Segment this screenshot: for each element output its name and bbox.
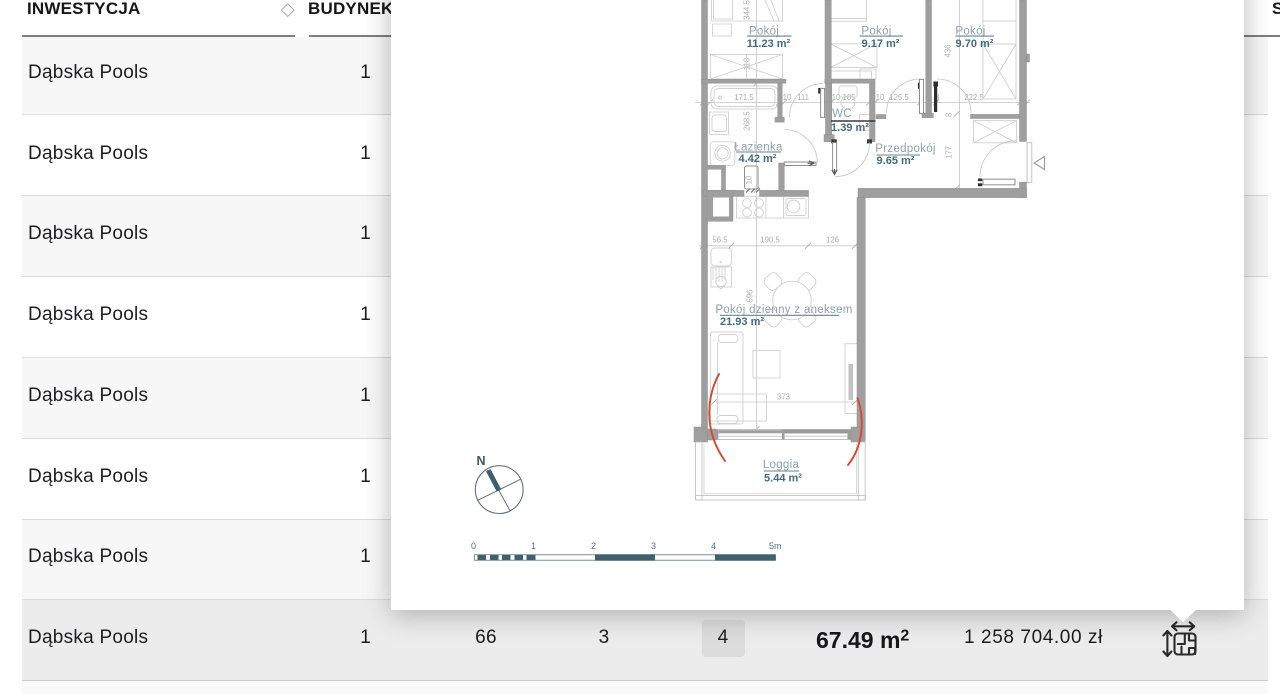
svg-text:Pokój dzienny z aneksem: Pokój dzienny z aneksem: [715, 304, 852, 316]
svg-text:9.17 m²: 9.17 m²: [862, 38, 900, 50]
svg-text:N: N: [476, 454, 485, 468]
svg-text:9.65 m²: 9.65 m²: [877, 155, 915, 167]
svg-text:11.23 m²: 11.23 m²: [747, 38, 791, 50]
svg-text:177: 177: [945, 146, 954, 159]
svg-text:10: 10: [745, 175, 754, 184]
svg-text:8: 8: [945, 113, 954, 117]
svg-text:436: 436: [944, 44, 953, 57]
svg-text:190.5: 190.5: [760, 236, 780, 245]
svg-text:4.42 m²: 4.42 m²: [739, 153, 777, 165]
svg-text:596: 596: [746, 289, 755, 302]
svg-text:4: 4: [711, 541, 716, 551]
svg-text:10: 10: [876, 93, 885, 102]
svg-text:268.5: 268.5: [743, 111, 752, 131]
svg-text:1.39 m²: 1.39 m²: [831, 122, 869, 134]
svg-text:5.44 m²: 5.44 m²: [764, 473, 802, 485]
svg-text:0: 0: [471, 541, 476, 551]
svg-text:171.5: 171.5: [734, 93, 754, 102]
svg-text:10: 10: [832, 93, 841, 102]
svg-text:1: 1: [531, 541, 536, 551]
svg-text:3: 3: [651, 541, 656, 551]
svg-text:Loggia: Loggia: [763, 459, 800, 471]
svg-text:10: 10: [783, 93, 792, 102]
svg-text:373: 373: [777, 393, 790, 402]
svg-text:WC: WC: [832, 108, 852, 120]
svg-text:5m: 5m: [769, 541, 782, 551]
svg-text:21.93 m²: 21.93 m²: [720, 316, 764, 328]
svg-text:126: 126: [826, 236, 839, 245]
svg-text:9.70 m²: 9.70 m²: [956, 38, 994, 50]
svg-text:Przedpokój: Przedpokój: [875, 143, 936, 155]
svg-text:105: 105: [842, 93, 856, 102]
svg-text:2: 2: [591, 541, 596, 551]
svg-text:344.5: 344.5: [743, 0, 752, 20]
svg-text:56.5: 56.5: [712, 236, 728, 245]
